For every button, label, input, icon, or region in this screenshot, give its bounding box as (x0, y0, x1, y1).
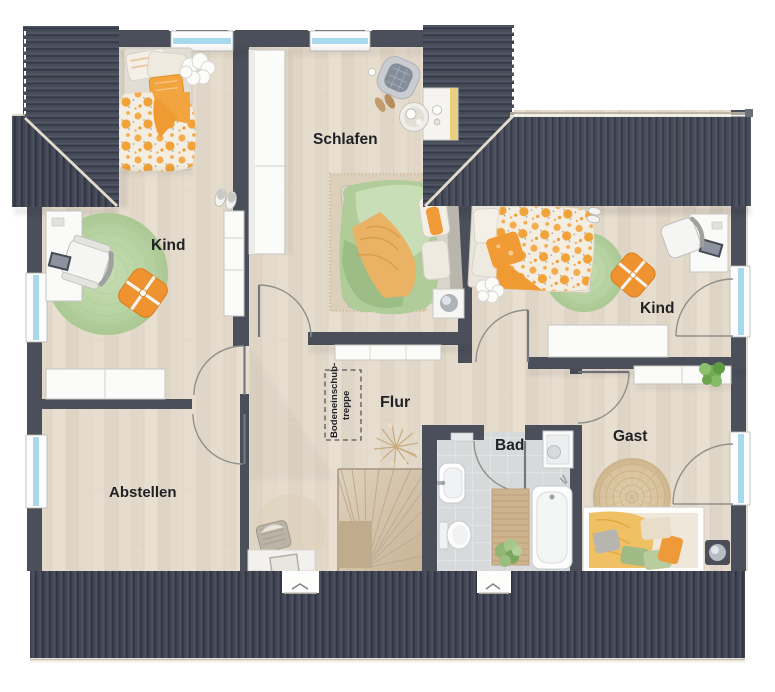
svg-text:Schlafen: Schlafen (313, 131, 378, 148)
svg-text:Bodeneinschub-: Bodeneinschub- (329, 363, 340, 438)
svg-text:Abstellen: Abstellen (109, 484, 177, 501)
svg-text:Kind: Kind (151, 237, 185, 254)
svg-text:Gast: Gast (613, 428, 647, 445)
svg-text:treppe: treppe (341, 391, 352, 420)
svg-text:Flur: Flur (380, 394, 410, 411)
svg-text:Kind: Kind (640, 300, 674, 317)
svg-text:Bad: Bad (495, 437, 524, 454)
